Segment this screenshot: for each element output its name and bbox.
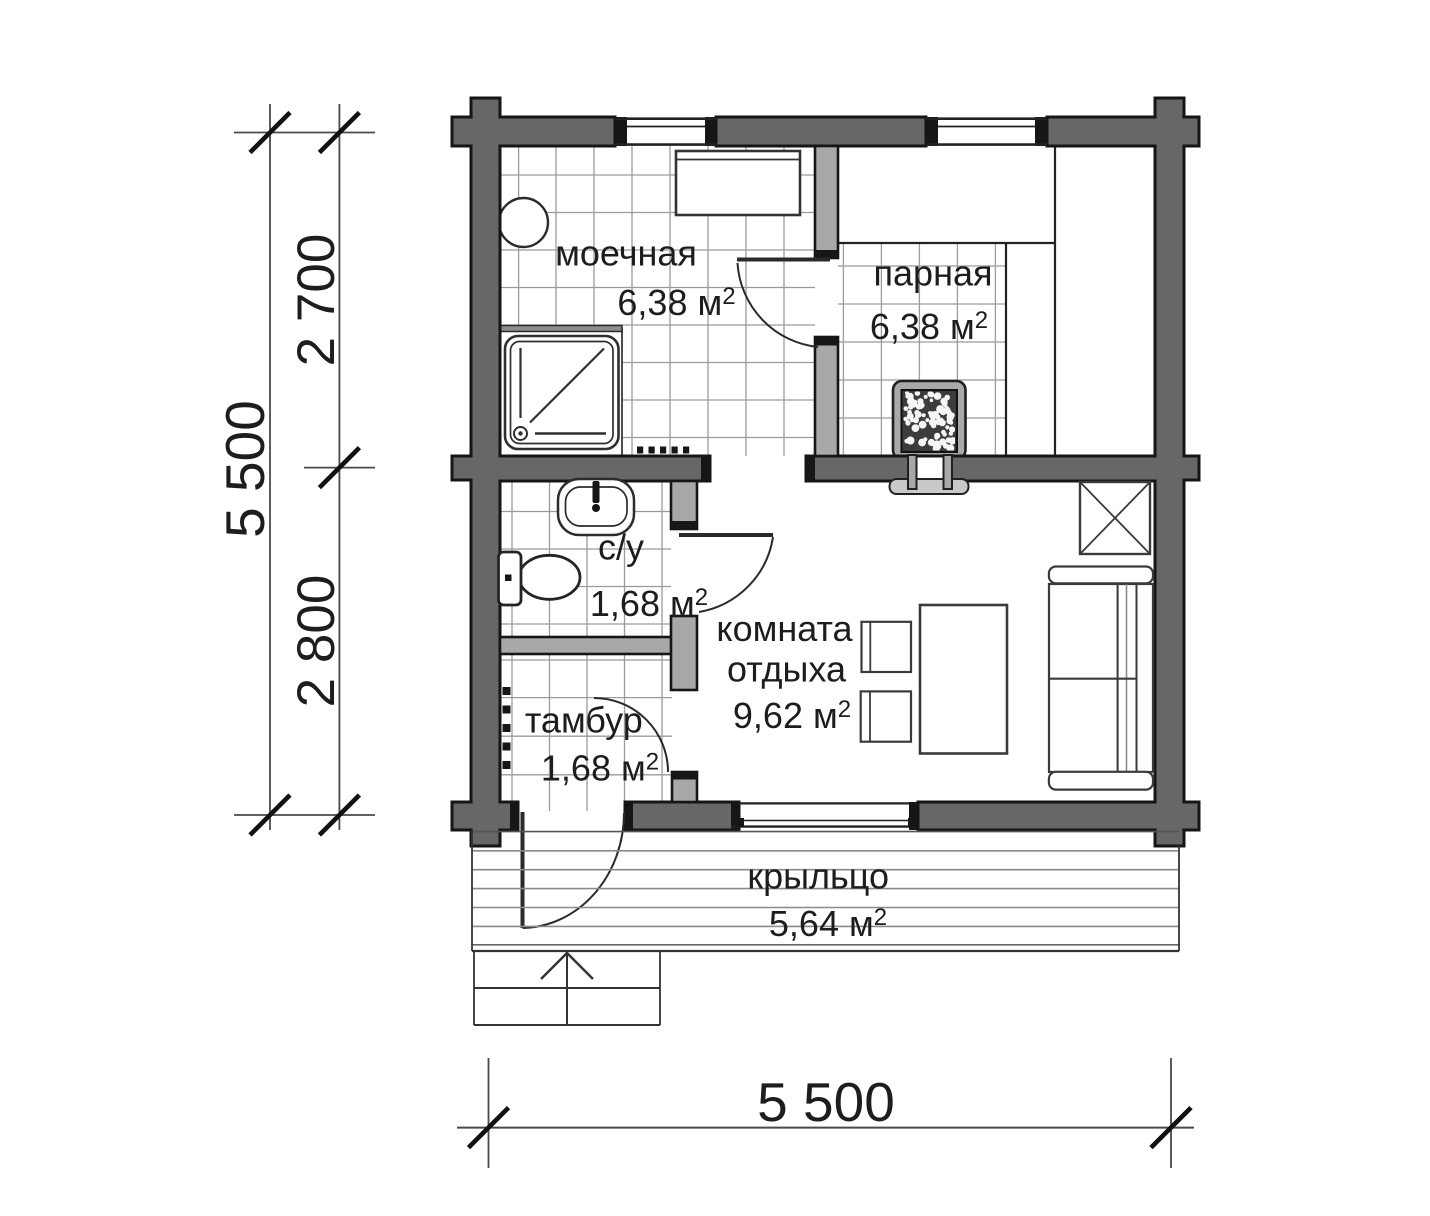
- svg-text:9,62 м2: 9,62 м2: [733, 695, 851, 736]
- svg-text:1,68 м2: 1,68 м2: [590, 583, 708, 624]
- svg-text:отдыха: отдыха: [727, 649, 847, 690]
- svg-text:6,38 м2: 6,38 м2: [617, 282, 735, 323]
- svg-text:тамбур: тамбур: [525, 700, 643, 741]
- svg-text:5 500: 5 500: [757, 1071, 895, 1133]
- svg-text:2 700: 2 700: [287, 234, 346, 367]
- svg-text:с/у: с/у: [598, 527, 644, 568]
- svg-text:1,68 м2: 1,68 м2: [541, 748, 659, 789]
- svg-text:крыльцо: крыльцо: [747, 856, 889, 897]
- svg-text:моечная: моечная: [555, 233, 697, 274]
- svg-text:парная: парная: [874, 253, 993, 294]
- svg-text:2 800: 2 800: [287, 575, 346, 708]
- svg-text:5 500: 5 500: [214, 400, 276, 538]
- svg-text:5,64 м2: 5,64 м2: [769, 903, 887, 944]
- svg-text:комната: комната: [716, 608, 853, 649]
- svg-text:6,38 м2: 6,38 м2: [870, 306, 988, 347]
